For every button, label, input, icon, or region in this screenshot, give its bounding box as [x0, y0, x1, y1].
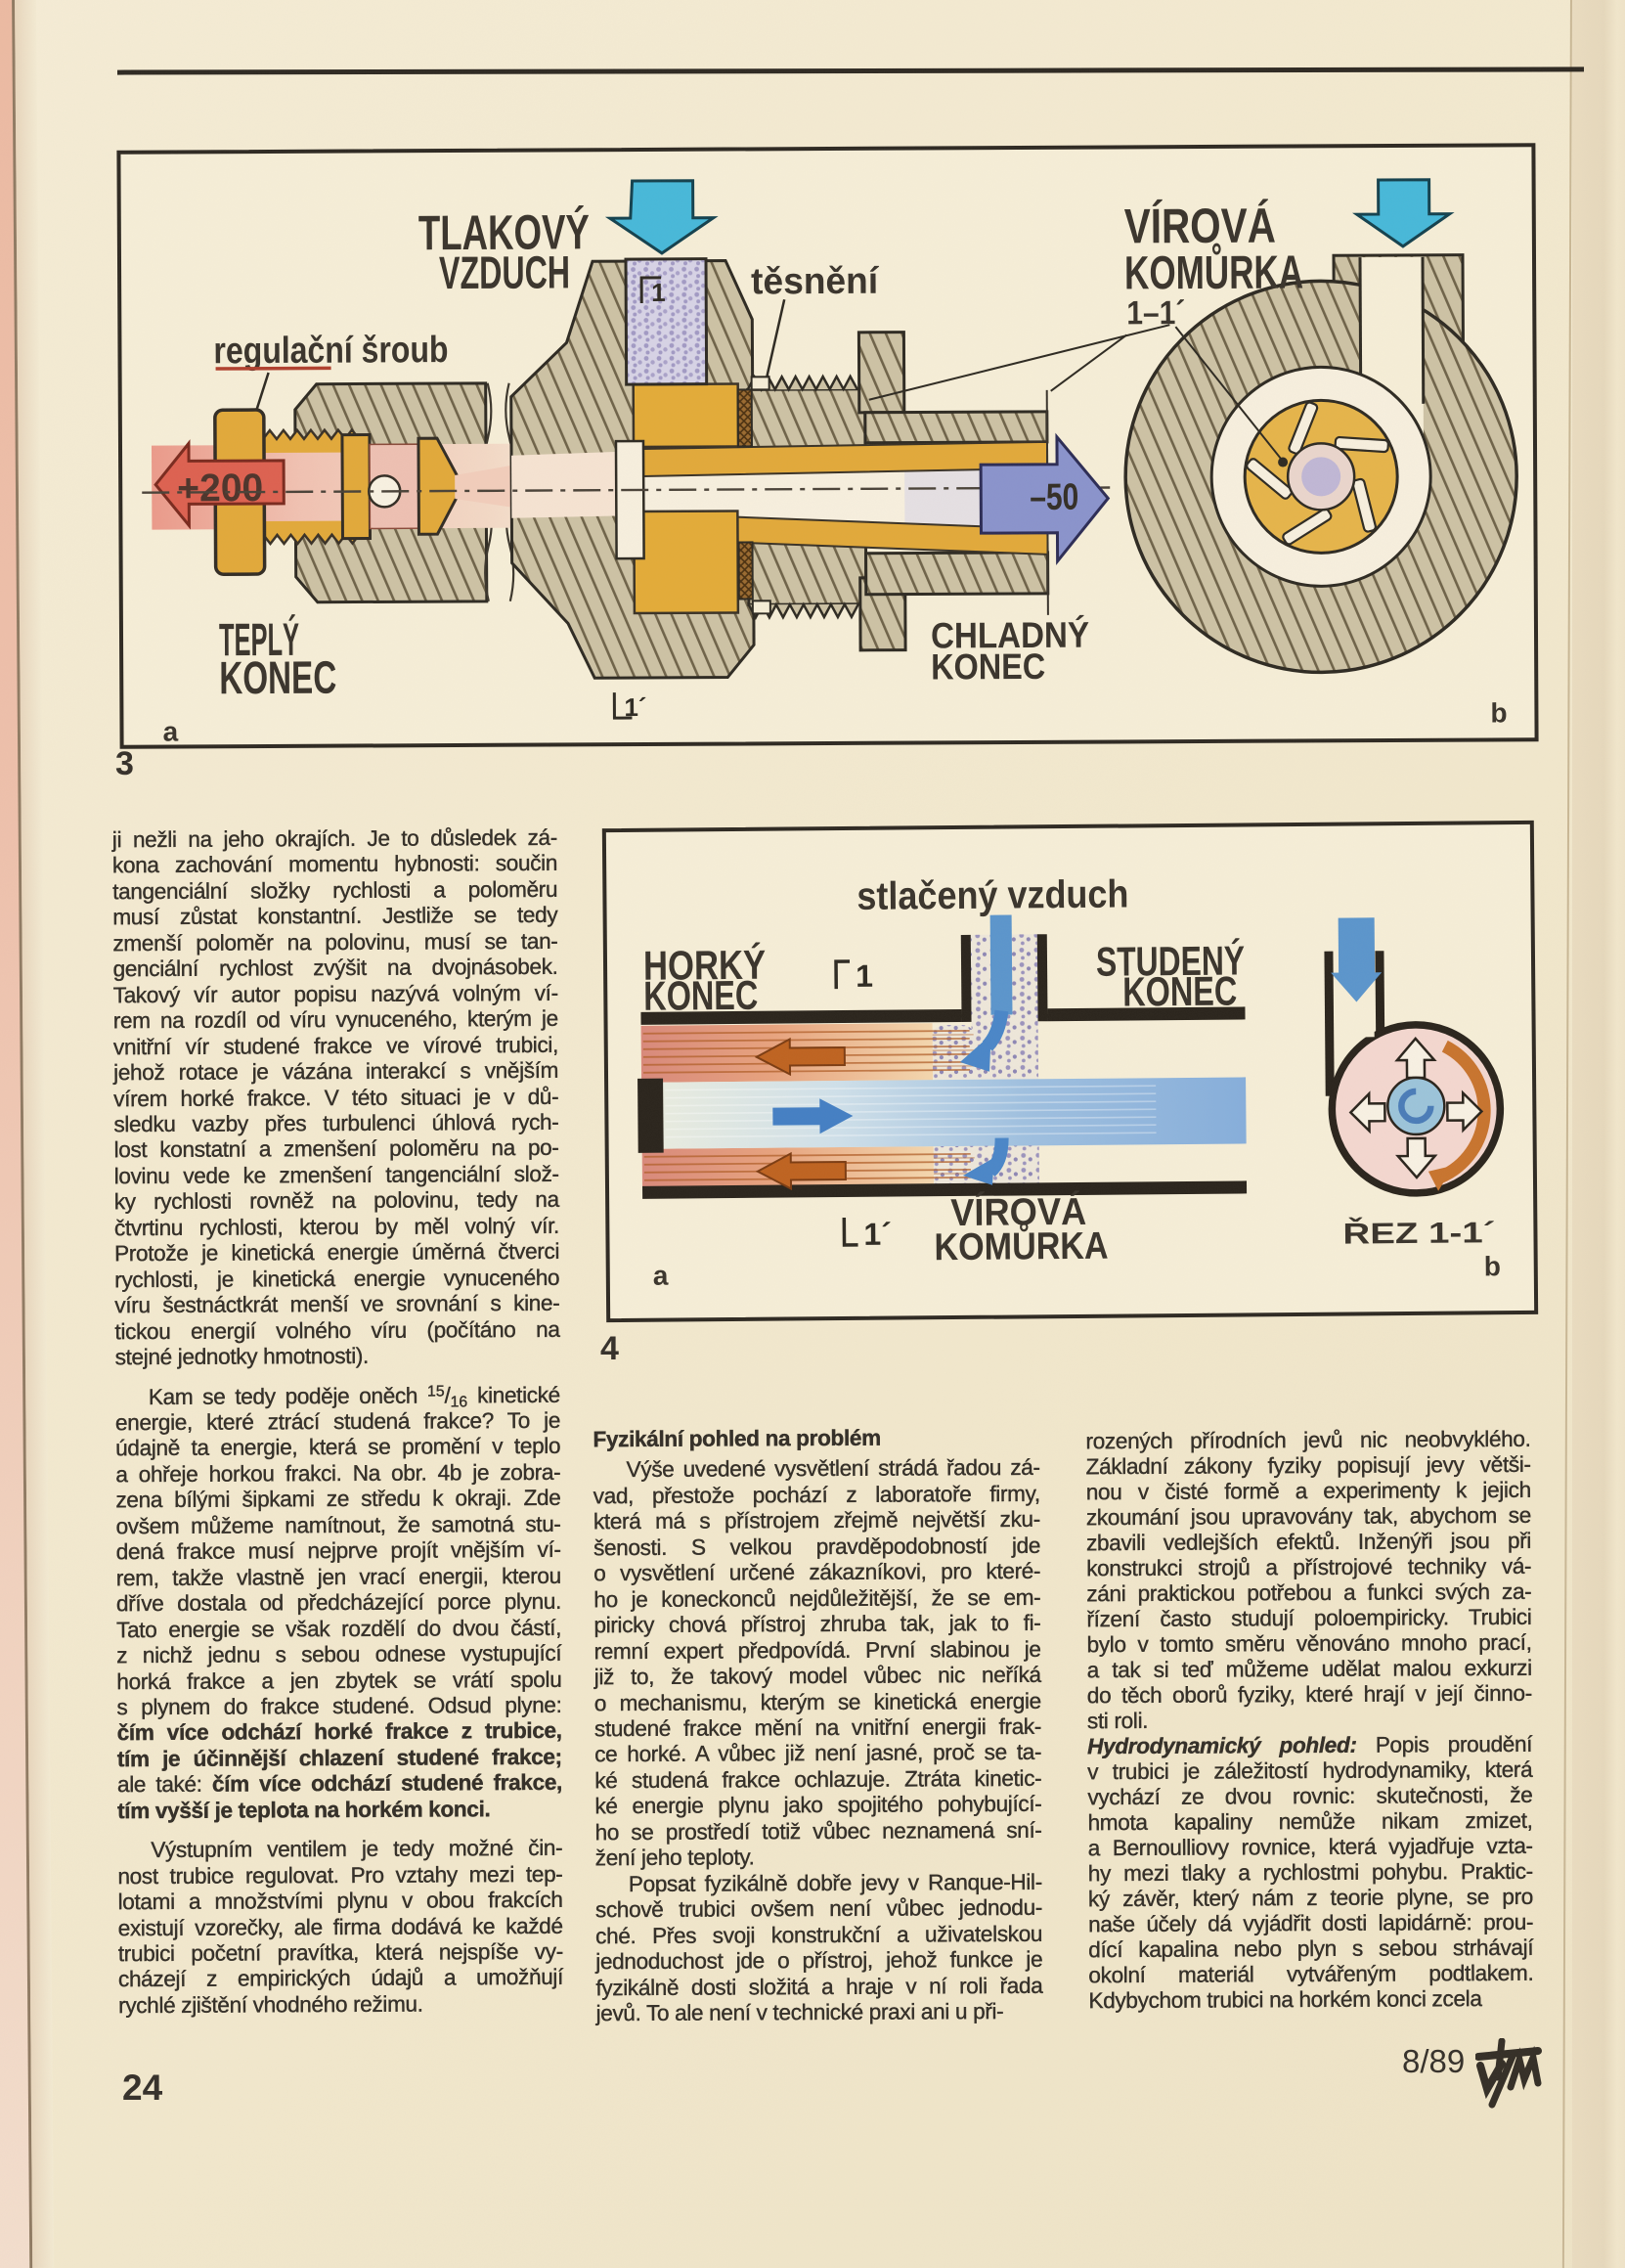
svg-text:b: b [1484, 1251, 1501, 1281]
svg-text:VZDUCH: VZDUCH [439, 245, 570, 298]
svg-text:1: 1 [856, 958, 873, 994]
svg-text:regulační šroub: regulační šroub [213, 330, 448, 372]
svg-text:KONEC: KONEC [219, 651, 336, 704]
svg-text:1: 1 [651, 278, 666, 307]
svg-text:–50: –50 [1030, 477, 1078, 518]
svg-text:b: b [1490, 697, 1507, 728]
svg-text:1´: 1´ [624, 692, 646, 722]
svg-text:1´: 1´ [863, 1217, 892, 1252]
svg-text:KONEC: KONEC [931, 646, 1045, 688]
svg-text:1–1´: 1–1´ [1126, 294, 1185, 332]
svg-text:stlačený vzduch: stlačený vzduch [856, 872, 1128, 917]
svg-text:a: a [162, 716, 178, 744]
svg-text:+200: +200 [177, 467, 263, 510]
svg-text:VÍROVÁ: VÍROVÁ [1124, 199, 1276, 254]
svg-text:těsnění: těsnění [751, 261, 880, 303]
svg-text:ŘEZ 1-1´: ŘEZ 1-1´ [1342, 1216, 1495, 1250]
svg-text:KOMŮRKA: KOMŮRKA [1124, 241, 1303, 299]
svg-text:a: a [653, 1261, 669, 1291]
svg-text:KOMŮRKA: KOMŮRKA [934, 1222, 1108, 1269]
